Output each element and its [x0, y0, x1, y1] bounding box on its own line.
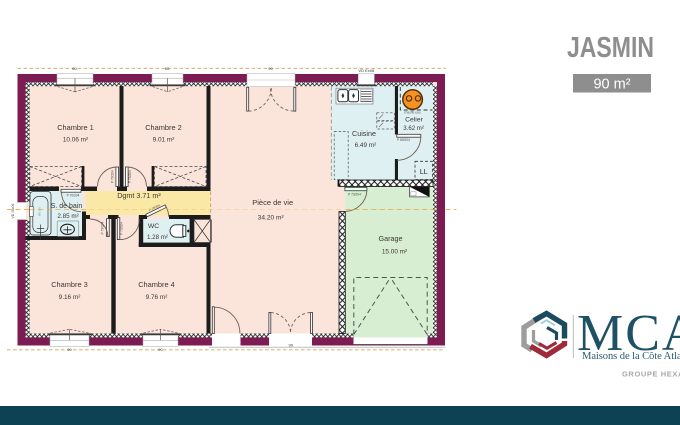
svg-text:Cuisine: Cuisine [352, 129, 376, 138]
svg-text:90: 90 [158, 347, 163, 352]
svg-text:90: 90 [67, 347, 72, 352]
svg-text:90: 90 [268, 66, 273, 71]
svg-text:60.: 60. [165, 66, 171, 71]
svg-text:1.28 m²: 1.28 m² [147, 234, 168, 241]
svg-text:Chambre 2: Chambre 2 [145, 123, 182, 132]
svg-text:JASMIN: JASMIN [567, 32, 654, 64]
svg-text:Chambre 1: Chambre 1 [57, 123, 94, 132]
svg-text:3.62 m²: 3.62 m² [403, 125, 424, 132]
svg-text:Chambre 3: Chambre 3 [51, 280, 88, 289]
svg-text:60.: 60. [72, 66, 78, 71]
svg-text:34.20 m²: 34.20 m² [258, 215, 285, 222]
svg-text:P 73/204: P 73/204 [111, 170, 115, 183]
svg-text:P 73/204: P 73/204 [100, 221, 104, 234]
svg-text:Dgmt 3.71 m²: Dgmt 3.71 m² [117, 191, 161, 200]
svg-text:2.85 m²: 2.85 m² [57, 213, 78, 220]
svg-text:BA 170: BA 170 [37, 207, 41, 216]
svg-text:Maisons de la Côte Atlantique: Maisons de la Côte Atlantique [582, 351, 680, 362]
svg-text:Celier: Celier [405, 116, 423, 123]
svg-text:10.06 m²: 10.06 m² [63, 137, 88, 144]
svg-text:P 69/204: P 69/204 [397, 138, 410, 142]
svg-text:15.00 m²: 15.00 m² [382, 248, 407, 255]
svg-text:VD 06x06: VD 06x06 [11, 203, 15, 218]
svg-text:P 73/204: P 73/204 [120, 222, 124, 235]
svg-text:GROUPE HEXAOM: GROUPE HEXAOM [622, 370, 680, 379]
svg-text:Garage: Garage [379, 234, 403, 243]
svg-text:VD Ex08: VD Ex08 [358, 68, 375, 73]
svg-text:Chambre 4: Chambre 4 [138, 280, 175, 289]
svg-text:P 73/204: P 73/204 [128, 170, 132, 183]
svg-text:9.16 m²: 9.16 m² [59, 294, 81, 301]
svg-text:WC: WC [148, 223, 159, 230]
svg-text:9.76 m²: 9.76 m² [146, 294, 168, 301]
svg-text:P 70/204: P 70/204 [67, 194, 80, 198]
svg-text:6.49 m²: 6.49 m² [355, 142, 377, 149]
svg-text:90 m²: 90 m² [593, 76, 630, 92]
svg-text:LL: LL [420, 169, 428, 176]
svg-text:90: 90 [288, 342, 293, 347]
svg-text:chauffe eau: chauffe eau [404, 110, 421, 114]
svg-text:P 73/204: P 73/204 [348, 193, 361, 197]
svg-text:9.01 m²: 9.01 m² [153, 137, 175, 144]
svg-text:S. de bain: S. de bain [51, 203, 83, 210]
svg-text:Pièce de vie: Pièce de vie [252, 198, 293, 207]
